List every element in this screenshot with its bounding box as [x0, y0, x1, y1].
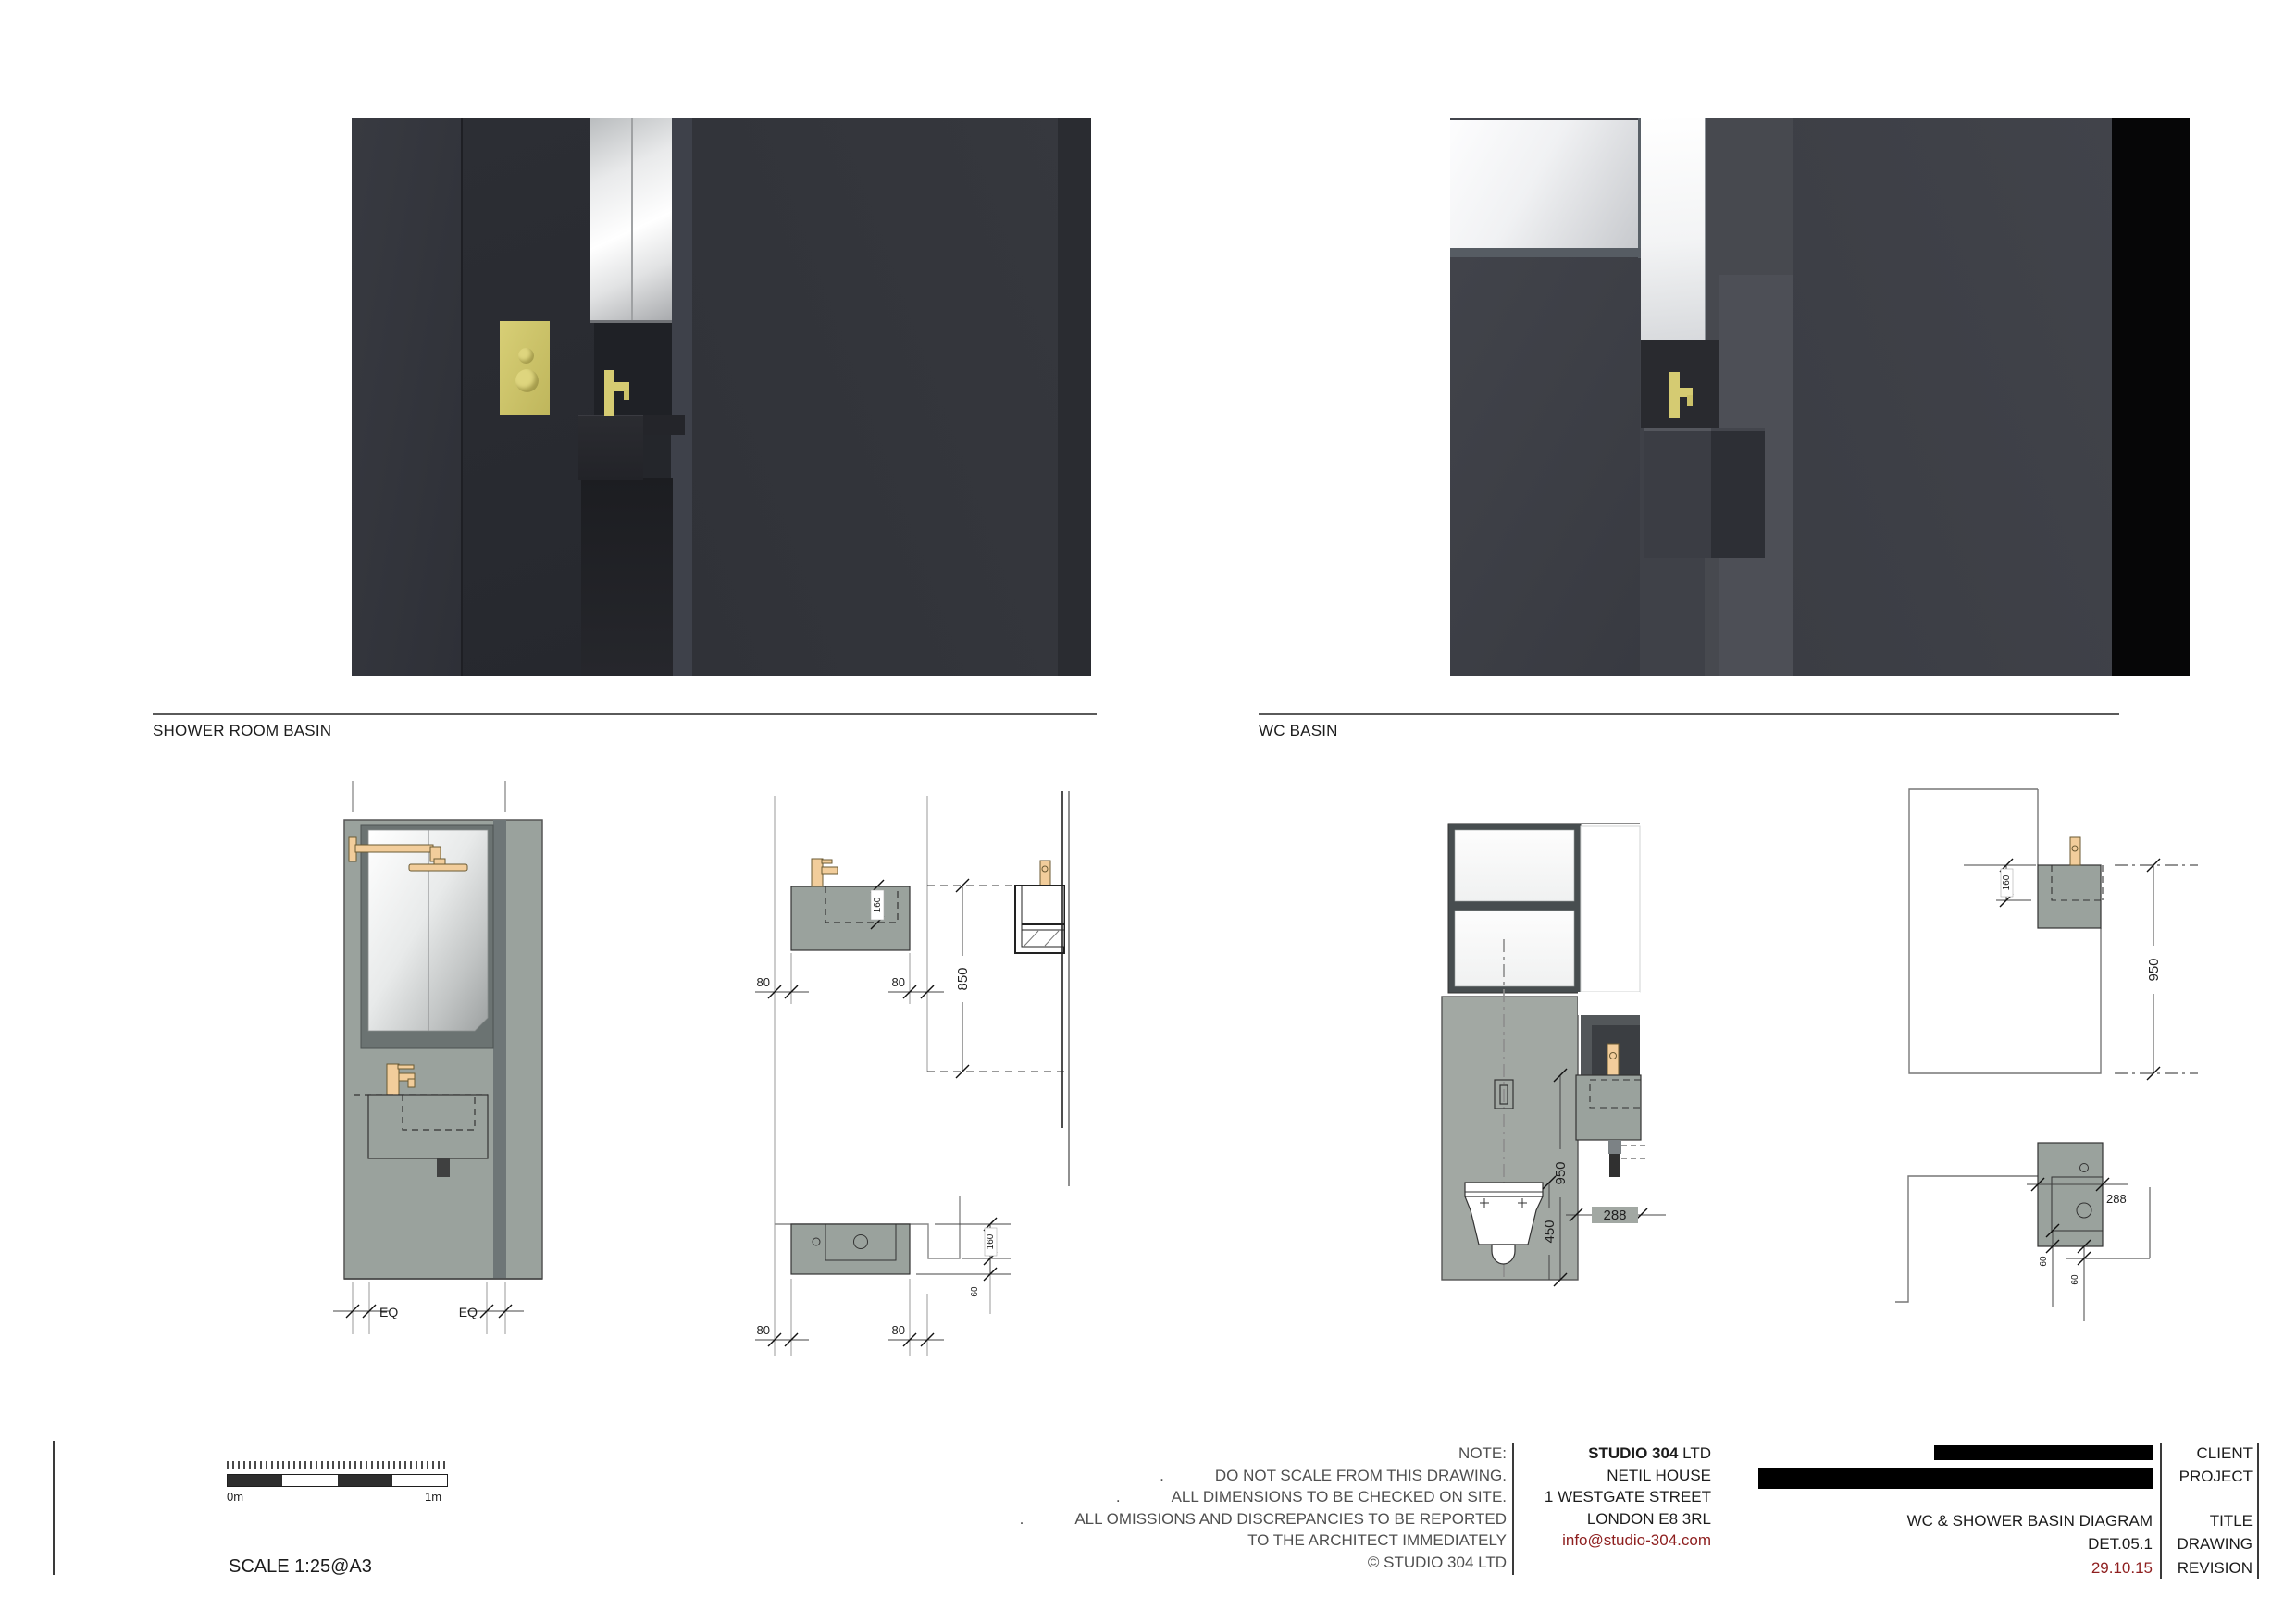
label-project: PROJECT [2179, 1468, 2253, 1486]
label-title: TITLE [2210, 1512, 2253, 1530]
dim-left-gap: 80 [757, 1323, 770, 1337]
dim-eq-right: EQ [459, 1305, 478, 1319]
studio-block: STUDIO 304 LTD NETIL HOUSE 1 WESTGATE ST… [1471, 1443, 1711, 1552]
shower-room-elevation-drawing: EQ EQ [333, 781, 542, 1334]
dim-eq-left: EQ [379, 1305, 398, 1319]
basin-tap-nozzle [1687, 395, 1693, 406]
shower-valve-plate [500, 321, 550, 415]
wc-elevation-drawing: 950 450 288 [1442, 824, 1666, 1286]
dim-edge-gap: 60 [2039, 1256, 2049, 1267]
render-wall-column [671, 118, 692, 676]
drawing-title: WC & SHOWER BASIN DIAGRAM [1907, 1512, 2153, 1530]
window-frame [1450, 248, 1650, 257]
basin-tap-nozzle [624, 390, 629, 400]
dim-wc-height: 450 [1542, 1220, 1558, 1243]
scale-segment [228, 1475, 282, 1486]
copyright-line: © STUDIO 304 LTD [914, 1552, 1507, 1574]
revision-date: 29.10.15 [2091, 1559, 2153, 1578]
render-wall [1793, 118, 2112, 676]
dim-ledge: 60 [970, 1286, 980, 1297]
basin-ledge-side [643, 415, 685, 435]
wc-render-image [1450, 118, 2190, 676]
dim-basin-width: 288 [2106, 1192, 2127, 1206]
section-rule [1259, 713, 2119, 715]
section-rule [153, 713, 1097, 715]
wc-basin-side-detail: 160 950 [1909, 789, 2198, 1080]
section-label-wc: WC BASIN [1259, 722, 1338, 740]
frosted-window [1450, 120, 1638, 249]
dim-bowl-depth: 160 [873, 897, 883, 912]
dim-bowl-depth: 160 [2002, 874, 2012, 890]
label-drawing: DRAWING [2177, 1535, 2253, 1554]
render-dark-strip [2112, 118, 2190, 676]
shower-valve-knob [518, 348, 534, 364]
studio-email[interactable]: info@studio-304.com [1471, 1530, 1711, 1552]
render-shadow [581, 478, 673, 676]
dim-edge-gap: 60 [2070, 1274, 2080, 1285]
notes-block: NOTE: .DO NOT SCALE FROM THIS DRAWING. .… [914, 1443, 1507, 1573]
scale-text: SCALE 1:25@A3 [229, 1556, 372, 1578]
dim-left-gap: 80 [757, 975, 770, 989]
label-revision: REVISION [2178, 1559, 2253, 1578]
scale-segment [392, 1475, 447, 1486]
render-wall [352, 118, 463, 676]
shower-valve-knob [515, 369, 539, 392]
shower-basin-front-detail: 160 80 80 850 [755, 791, 1069, 1356]
studio-address: NETIL HOUSE [1471, 1465, 1711, 1487]
note-line: .DO NOT SCALE FROM THIS DRAWING. [914, 1465, 1507, 1487]
dim-basin-height: 950 [2146, 958, 2162, 981]
dim-basin-width: 288 [1603, 1208, 1626, 1223]
scale-bar-ticks [227, 1461, 447, 1469]
render-wall [692, 118, 1091, 676]
scale-zero-label: 0m [227, 1490, 243, 1504]
shower-room-render-image [352, 118, 1091, 676]
basin-ledge [578, 415, 643, 480]
basin-tap [604, 370, 614, 416]
scale-segment [338, 1475, 392, 1486]
section-label-shower: SHOWER ROOM BASIN [153, 722, 331, 740]
titleblock-divider [53, 1441, 55, 1575]
white-cabinet [1641, 118, 1706, 341]
dim-right-gap: 80 [892, 975, 905, 989]
note-line: .ALL OMISSIONS AND DISCREPANCIES TO BE R… [914, 1508, 1507, 1530]
scale-bar [227, 1474, 448, 1487]
titleblock-divider [2160, 1443, 2162, 1579]
drawing-number: DET.05.1 [2088, 1535, 2153, 1554]
wc-basin-plan-detail: 288 60 60 [1895, 1143, 2150, 1321]
client-redaction-bar [1934, 1445, 2153, 1460]
studio-name: STUDIO 304 LTD [1471, 1443, 1711, 1465]
note-line: TO THE ARCHITECT IMMEDIATELY [914, 1530, 1507, 1552]
dim-right-gap: 80 [892, 1323, 905, 1337]
basin-niche [1641, 340, 1719, 428]
label-client: CLIENT [2197, 1444, 2253, 1463]
titleblock-divider [2257, 1443, 2259, 1579]
basin-block [1644, 428, 1711, 558]
shower-basin-plan-detail: 80 80 160 60 [755, 1196, 1011, 1356]
mirror-cabinet-seam [631, 118, 633, 320]
dim-niche-depth: 160 [986, 1233, 996, 1249]
drawing-sheet: SHOWER ROOM BASIN WC BASIN [0, 0, 2296, 1623]
studio-address: 1 WESTGATE STREET [1471, 1486, 1711, 1508]
scale-segment [282, 1475, 337, 1486]
basin-block-side [1711, 428, 1765, 558]
render-wall-edge [1058, 118, 1091, 676]
dim-basin-height: 850 [955, 967, 971, 990]
project-redaction-bar [1758, 1468, 2153, 1489]
notes-heading: NOTE: [914, 1443, 1507, 1465]
note-line: .ALL DIMENSIONS TO BE CHECKED ON SITE. [914, 1486, 1507, 1508]
dim-basin-height: 950 [1553, 1161, 1569, 1184]
scale-one-label: 1m [425, 1490, 441, 1504]
studio-address: LONDON E8 3RL [1471, 1508, 1711, 1530]
